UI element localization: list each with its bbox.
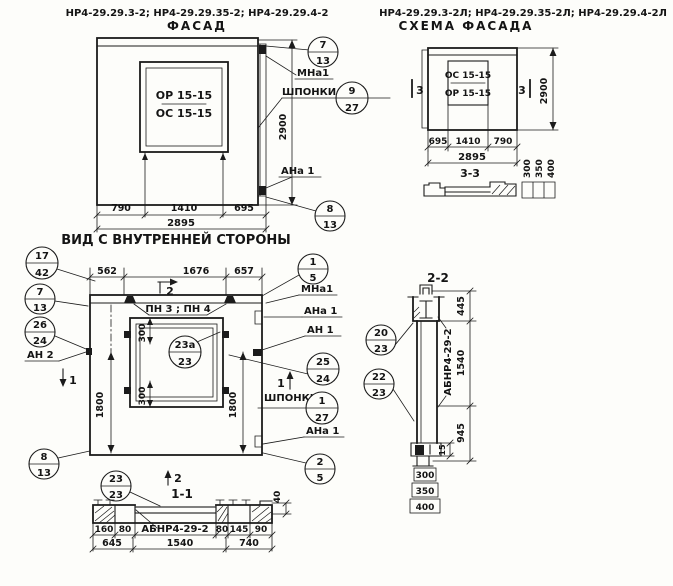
svg-text:2: 2: [174, 472, 182, 485]
interior-bubble-17-42: 17 42: [26, 247, 58, 279]
svg-text:3: 3: [416, 84, 424, 97]
svg-text:23: 23: [372, 388, 386, 399]
section22-dim-300: 300: [416, 471, 435, 481]
section-1-1-drawing: 23 23 1-1 40 160 80 АБНР4-29-2 80 145 90: [90, 471, 291, 552]
schema-dim-1410: 1410: [455, 137, 480, 147]
facade-dim-790: 790: [111, 203, 131, 214]
interior-dim-1800-right: 1800: [228, 391, 239, 418]
section-2-2-title: 2-2: [427, 271, 449, 285]
section22-beam-label: АБНР4-29-2: [443, 328, 454, 395]
section-2-2-drawing: 2-2 20 23 22 23 АБНР4-29-2: [364, 271, 476, 513]
facade-window-mark-bottom: ОС 15-15: [156, 107, 212, 120]
schema-window-mark-bottom: ОР 15-15: [445, 89, 491, 99]
facade-panel-outline: [97, 38, 258, 205]
svg-text:1: 1: [69, 374, 77, 387]
section-3-3-profile: [424, 182, 516, 196]
interior-label-an1: АН 1: [307, 325, 334, 336]
svg-text:13: 13: [316, 56, 330, 67]
edge-notch: [255, 311, 262, 324]
schema-thk-350: 350: [535, 159, 545, 178]
section-3-3-title: 3-3: [460, 167, 480, 180]
interior-bubble-25-24: 25 24: [307, 353, 339, 385]
svg-text:27: 27: [315, 413, 329, 424]
section-1-marker-right: 1: [277, 371, 293, 390]
svg-text:23: 23: [178, 357, 192, 368]
drawing-canvas: НР4-29.29.3-2; НР4-29.29.35-2; НР4-29.29…: [0, 0, 673, 586]
svg-text:5: 5: [310, 273, 317, 284]
section11-dim-160: 160: [95, 525, 114, 535]
schema-dim-695: 695: [429, 137, 448, 147]
edge-clip-left: [86, 348, 92, 355]
schema-thk-400: 400: [547, 159, 557, 178]
svg-text:13: 13: [323, 220, 337, 231]
interior-bubble-1-27: 1 27: [306, 392, 338, 424]
facade-bubble-key: 9 27: [336, 82, 368, 114]
schema-dim-2900: 2900: [539, 77, 550, 104]
svg-text:27: 27: [345, 103, 359, 114]
svg-text:42: 42: [35, 268, 49, 279]
schema-codes: НР4-29.29.3-2Л; НР4-29.29.35-2Л; НР4-29.…: [379, 8, 667, 19]
facade-bubble-8-13: 8 13: [315, 201, 345, 231]
interior-dim-1800-left: 1800: [95, 391, 106, 418]
lifting-loop-left: [124, 296, 136, 303]
svg-text:24: 24: [316, 374, 330, 385]
svg-text:5: 5: [317, 473, 324, 484]
section11-beam-label: АБНР4-29-2: [141, 524, 208, 535]
facade-anchor-bottom: [259, 186, 266, 195]
interior-bubble-1-5: 1 5: [298, 254, 328, 284]
facade-drawing: НР4-29.29.3-2; НР4-29.29.35-2; НР4-29.29…: [66, 8, 390, 232]
svg-text:24: 24: [33, 336, 47, 347]
section11-dim-1540: 1540: [167, 538, 194, 549]
section22-dim-15: 15: [438, 444, 447, 456]
interior-label-ana1-2: АНа 1: [306, 426, 339, 437]
schema-window-mark-top: ОС 15-15: [445, 71, 491, 81]
facade-label-shponki: ШПОНКИ: [282, 87, 336, 98]
svg-text:20: 20: [374, 328, 388, 339]
section22-dim-945: 945: [456, 423, 467, 443]
svg-text:23а: 23а: [175, 340, 196, 351]
section11-dim-145: 145: [230, 525, 249, 535]
svg-text:7: 7: [320, 40, 327, 51]
interior-bubble-8-13: 8 13: [29, 449, 59, 479]
section22-dim-350: 350: [416, 487, 435, 497]
svg-text:8: 8: [41, 452, 48, 463]
section11-dim-90: 90: [255, 525, 268, 535]
section11-bubble-23: 23 23: [101, 471, 131, 501]
svg-text:7: 7: [37, 287, 44, 298]
schema-dim-790: 790: [494, 137, 513, 147]
svg-text:8: 8: [327, 204, 334, 215]
section22-bubble-22-23: 22 23: [364, 369, 394, 399]
svg-text:1: 1: [310, 257, 317, 268]
svg-text:2: 2: [166, 285, 174, 298]
section-1-1-title: 1-1: [171, 487, 193, 501]
interior-dim-300-top: 300: [138, 324, 148, 343]
svg-text:1: 1: [319, 396, 326, 407]
section-1-marker-left: 1: [60, 369, 77, 387]
facade-window-mark-top: ОР 15-15: [156, 89, 212, 102]
interior-dim-1676: 1676: [183, 266, 210, 277]
facade-title: ФАСАД: [167, 19, 227, 33]
section11-dim-645: 645: [102, 538, 122, 549]
schema-title: СХЕМА ФАСАДА: [399, 19, 534, 33]
facade-dim-1410: 1410: [171, 203, 198, 214]
section-2-marker-bottom: 2: [165, 470, 182, 485]
section11-dim-740: 740: [239, 538, 259, 549]
section22-bubble-20-23: 20 23: [366, 325, 396, 355]
schema-thk-300: 300: [523, 159, 533, 178]
facade-codes: НР4-29.29.3-2; НР4-29.29.35-2; НР4-29.29…: [66, 8, 329, 19]
interior-label-an2: АН 2: [27, 350, 54, 361]
svg-text:23: 23: [374, 344, 388, 355]
section-1-1-profile: [93, 500, 272, 523]
interior-panel-outline: [90, 295, 262, 455]
window-clip: [124, 331, 131, 338]
facade-dim-695: 695: [234, 203, 254, 214]
facade-dim-2895: 2895: [167, 218, 195, 229]
section22-dim-1540: 1540: [456, 349, 467, 376]
edge-clip-right: [253, 349, 262, 356]
svg-text:17: 17: [35, 251, 49, 262]
interior-label-pn: ПН 3 ; ПН 4: [145, 304, 210, 315]
blueprint-sheet: НР4-29.29.3-2; НР4-29.29.35-2; НР4-29.29…: [0, 0, 673, 586]
svg-text:22: 22: [372, 372, 386, 383]
facade-label-ana1: АНа 1: [281, 166, 314, 177]
interior-bubble-7-13: 7 13: [25, 284, 55, 314]
svg-text:25: 25: [316, 357, 330, 368]
schema-dim-2895: 2895: [458, 152, 486, 163]
lifting-loop-right: [224, 296, 236, 303]
facade-bubble-7-13: 7 13: [308, 37, 338, 67]
section-2-2-profile: [408, 285, 444, 466]
facade-anchor-top: [259, 45, 266, 54]
interior-bubble-23a: 23а 23: [169, 332, 220, 368]
section22-dim-445: 445: [456, 296, 467, 316]
window-clip: [222, 331, 229, 338]
interior-drawing: ВИД С ВНУТРЕННЕЙ СТОРОНЫ 562 1676 657 2 …: [25, 232, 344, 485]
svg-text:23: 23: [109, 474, 123, 485]
schema-drawing: НР4-29.29.3-2Л; НР4-29.29.35-2Л; НР4-29.…: [379, 8, 667, 198]
svg-text:3: 3: [518, 84, 526, 97]
interior-bubble-2-5: 2 5: [305, 454, 335, 484]
interior-title: ВИД С ВНУТРЕННЕЙ СТОРОНЫ: [61, 232, 290, 248]
svg-text:26: 26: [33, 320, 47, 331]
svg-text:13: 13: [33, 303, 47, 314]
svg-text:13: 13: [37, 468, 51, 479]
svg-text:1: 1: [277, 377, 285, 390]
svg-text:2: 2: [317, 457, 324, 468]
interior-dim-562: 562: [97, 266, 117, 277]
facade-dim-2900: 2900: [278, 113, 289, 140]
section11-dim-80a: 80: [119, 525, 132, 535]
svg-text:23: 23: [109, 490, 123, 501]
facade-label-mna1: МНа1: [297, 68, 329, 79]
window-clip: [124, 387, 131, 394]
interior-label-ana1: АНа 1: [304, 306, 337, 317]
section22-dim-400: 400: [416, 503, 435, 513]
section11-dim-40: 40: [273, 491, 283, 504]
section11-dim-80b: 80: [216, 525, 229, 535]
interior-dim-657: 657: [234, 266, 254, 277]
edge-notch: [255, 436, 262, 447]
svg-text:9: 9: [349, 86, 356, 97]
interior-label-mna1: МНа1: [301, 284, 333, 295]
interior-dim-300-bottom: 300: [138, 387, 148, 406]
interior-bubble-26-24: 26 24: [25, 317, 55, 347]
